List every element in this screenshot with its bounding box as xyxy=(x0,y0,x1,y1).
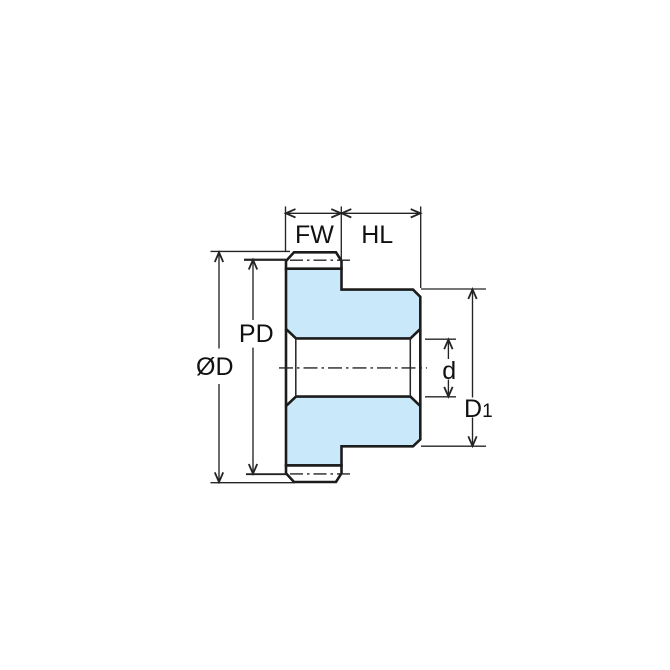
svg-text:FW: FW xyxy=(295,221,334,249)
svg-text:d: d xyxy=(442,357,456,385)
svg-text:ØD: ØD xyxy=(196,353,234,381)
svg-text:HL: HL xyxy=(361,221,393,249)
svg-text:PD: PD xyxy=(239,320,274,348)
